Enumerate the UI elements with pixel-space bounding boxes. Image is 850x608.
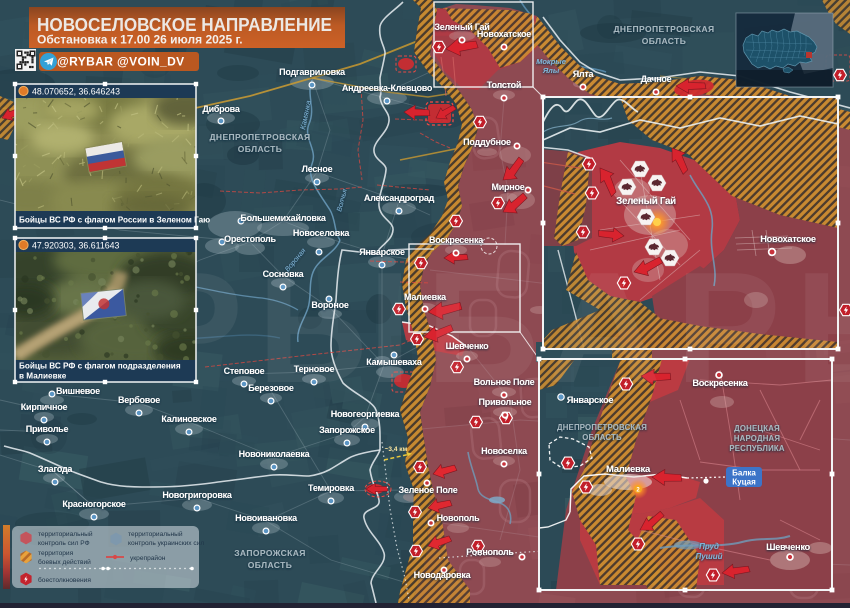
svg-text:Толстой: Толстой xyxy=(487,80,521,90)
svg-text:РЕСПУБЛИКА: РЕСПУБЛИКА xyxy=(729,444,785,453)
svg-text:РЫБАРЬ: РЫБАРЬ xyxy=(138,240,850,416)
svg-text:Куцая: Куцая xyxy=(732,478,756,487)
svg-text:Дачное: Дачное xyxy=(641,74,672,84)
svg-text:Темировка: Темировка xyxy=(308,483,355,493)
svg-text:Балка: Балка xyxy=(732,469,756,478)
svg-text:Диброва: Диброва xyxy=(202,104,240,114)
svg-text:Обстановка к 17.00 26 июля 202: Обстановка к 17.00 26 июля 2025 г. xyxy=(37,33,243,47)
svg-text:47.920303, 36.611643: 47.920303, 36.611643 xyxy=(32,241,120,251)
svg-text:территориальный: территориальный xyxy=(38,530,93,538)
svg-text:Новогригоровка: Новогригоровка xyxy=(162,490,233,500)
svg-text:@VOIN_DV: @VOIN_DV xyxy=(117,55,185,69)
svg-text:Ялта: Ялта xyxy=(573,69,595,79)
svg-text:Новоселовка: Новоселовка xyxy=(293,228,350,238)
svg-text:Новохатское: Новохатское xyxy=(477,29,531,39)
svg-text:Кирпичное: Кирпичное xyxy=(21,402,68,412)
svg-text:Малиевка: Малиевка xyxy=(606,464,651,475)
svg-text:Мирное: Мирное xyxy=(492,182,525,192)
svg-text:Ровнополь: Ровнополь xyxy=(466,547,514,557)
svg-text:Андреевка-Клевцово: Андреевка-Клевцово xyxy=(342,83,433,93)
svg-text:территория: территория xyxy=(38,550,74,557)
svg-text:Новоселка: Новоселка xyxy=(481,446,528,456)
svg-text:боестолкновения: боестолкновения xyxy=(38,576,91,584)
svg-text:ДНЕПРОПЕТРОВСКАЯ: ДНЕПРОПЕТРОВСКАЯ xyxy=(209,132,310,142)
svg-text:ОБЛАСТЬ: ОБЛАСТЬ xyxy=(582,433,622,442)
svg-text:ДНЕПРОПЕТРОВСКАЯ: ДНЕПРОПЕТРОВСКАЯ xyxy=(613,24,714,34)
svg-text:Вишневое: Вишневое xyxy=(56,386,100,396)
svg-text:контроль сил РФ: контроль сил РФ xyxy=(38,540,90,547)
svg-text:Новополь: Новополь xyxy=(437,513,481,523)
svg-text:@RYBAR: @RYBAR xyxy=(57,55,113,69)
svg-text:Пруд: Пруд xyxy=(699,542,719,551)
svg-text:Новодаровка: Новодаровка xyxy=(414,570,472,580)
svg-text:Подгавриловка: Подгавриловка xyxy=(279,67,346,77)
svg-text:укрепрайон: укрепрайон xyxy=(130,554,166,562)
svg-text:Бойцы ВС РФ с флагом России в: Бойцы ВС РФ с флагом России в Зеленом Га… xyxy=(19,216,210,225)
svg-text:ОБЛАСТЬ: ОБЛАСТЬ xyxy=(238,144,282,154)
svg-text:Поддубное: Поддубное xyxy=(463,137,511,147)
svg-text:Запорожское: Запорожское xyxy=(319,425,375,435)
svg-text:Зеленое Поле: Зеленое Поле xyxy=(398,485,457,495)
svg-text:Шевченко: Шевченко xyxy=(766,542,810,552)
svg-text:ДОНЕЦКАЯ: ДОНЕЦКАЯ xyxy=(734,424,780,433)
svg-text:48.070652, 36.646243: 48.070652, 36.646243 xyxy=(32,87,120,97)
svg-text:Ялы: Ялы xyxy=(542,66,560,75)
svg-text:Приволье: Приволье xyxy=(26,424,69,434)
svg-text:Красногорское: Красногорское xyxy=(62,499,125,509)
svg-text:Мокрые: Мокрые xyxy=(536,57,566,66)
svg-text:ОБЛАСТЬ: ОБЛАСТЬ xyxy=(248,560,292,570)
svg-text:~3,4 км: ~3,4 км xyxy=(385,446,408,453)
svg-text:Новониколаевка: Новониколаевка xyxy=(239,449,311,459)
svg-text:ОБЛАСТЬ: ОБЛАСТЬ xyxy=(642,36,686,46)
svg-text:НАРОДНАЯ: НАРОДНАЯ xyxy=(734,434,781,443)
svg-text:ЗАПОРОЖСКАЯ: ЗАПОРОЖСКАЯ xyxy=(234,548,306,558)
svg-text:Пуший: Пуший xyxy=(695,552,722,561)
svg-text:Лесное: Лесное xyxy=(302,164,333,174)
svg-text:Новоивановка: Новоивановка xyxy=(235,513,298,523)
svg-text:Злагода: Злагода xyxy=(38,464,74,474)
svg-text:Большемихайловка: Большемихайловка xyxy=(240,213,326,223)
svg-text:в Малиевке: в Малиевке xyxy=(19,372,67,381)
svg-text:Александроград: Александроград xyxy=(364,193,435,203)
svg-text:Бойцы ВС РФ с флагом подраздел: Бойцы ВС РФ с флагом подразделения xyxy=(19,362,181,371)
svg-text:ДНЕПРОПЕТРОВСКАЯ: ДНЕПРОПЕТРОВСКАЯ xyxy=(557,423,647,432)
svg-text:боевых действий: боевых действий xyxy=(38,558,91,566)
svg-text:контроль украинских сил: контроль украинских сил xyxy=(128,540,204,547)
svg-text:Зеленый Гай: Зеленый Гай xyxy=(616,196,676,207)
svg-text:территориальный: территориальный xyxy=(128,530,183,538)
